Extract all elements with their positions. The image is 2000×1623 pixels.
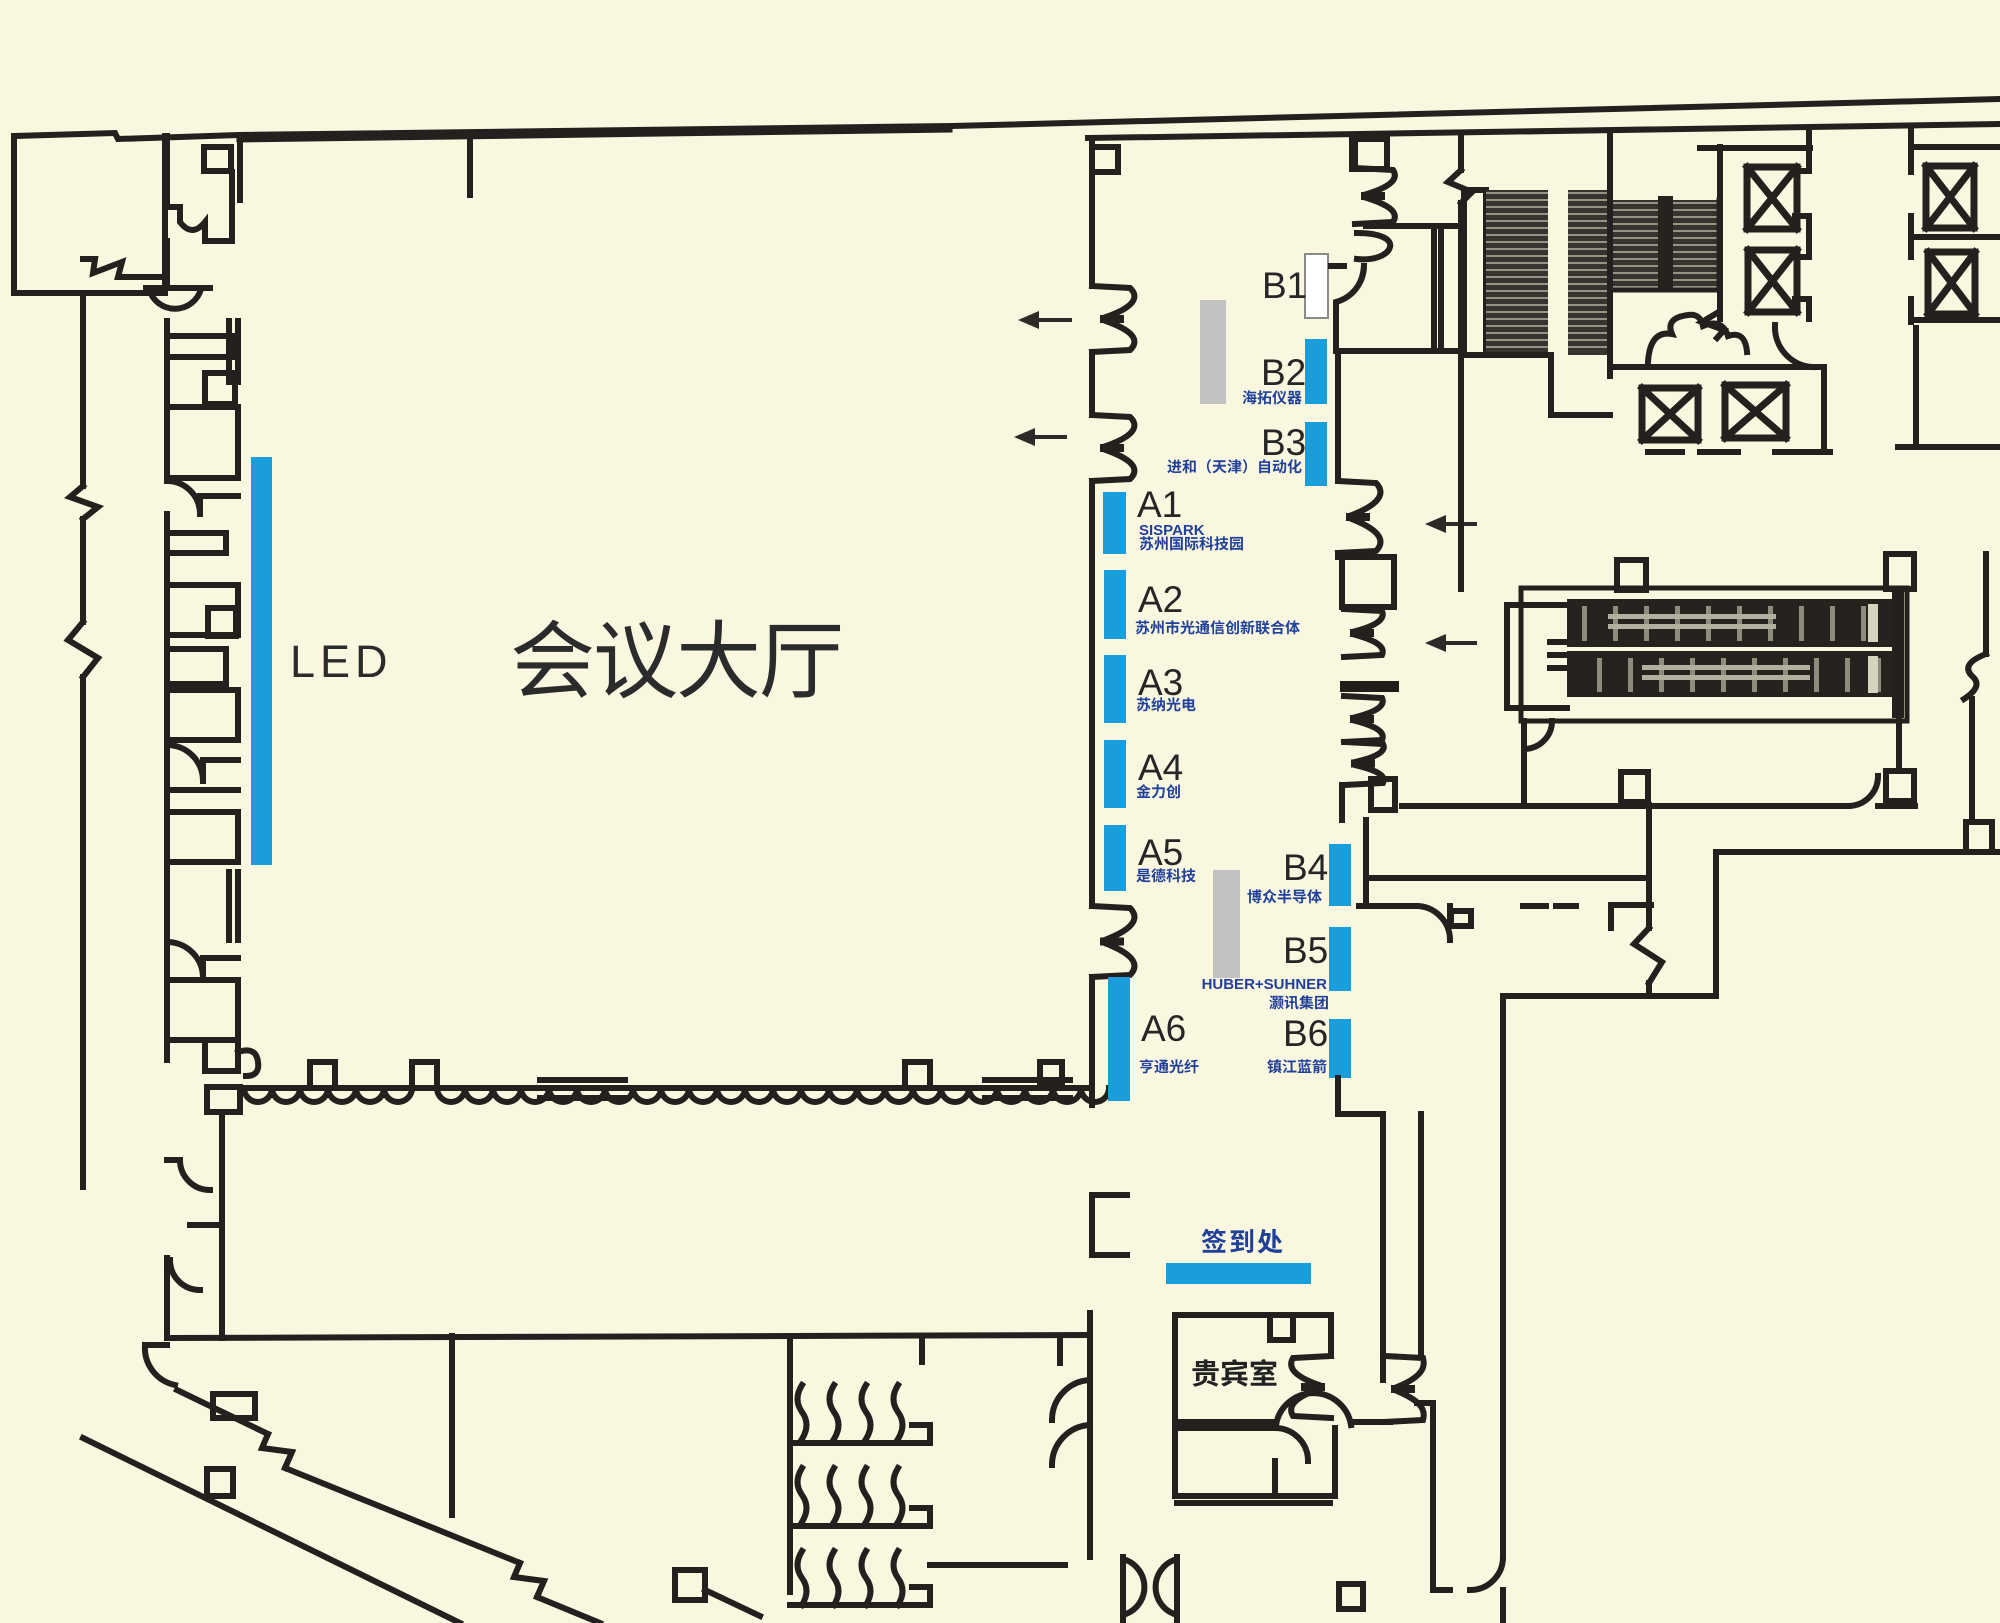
svg-text:B2: B2 <box>1261 352 1306 393</box>
svg-text:HUBER+SUHNER: HUBER+SUHNER <box>1202 976 1328 993</box>
svg-text:B6: B6 <box>1283 1013 1328 1054</box>
svg-text:B4: B4 <box>1283 847 1328 888</box>
svg-text:A4: A4 <box>1138 747 1183 788</box>
svg-text:A3: A3 <box>1138 662 1183 703</box>
svg-text:SISPARK: SISPARK <box>1139 522 1205 539</box>
svg-text:A2: A2 <box>1138 579 1183 620</box>
svg-text:B1: B1 <box>1262 265 1307 306</box>
svg-text:A6: A6 <box>1141 1008 1186 1049</box>
svg-text:A5: A5 <box>1138 832 1183 873</box>
svg-text:LED: LED <box>290 636 393 687</box>
svg-text:A1: A1 <box>1137 484 1182 525</box>
svg-text:B3: B3 <box>1261 422 1306 463</box>
svg-text:B5: B5 <box>1283 930 1328 971</box>
